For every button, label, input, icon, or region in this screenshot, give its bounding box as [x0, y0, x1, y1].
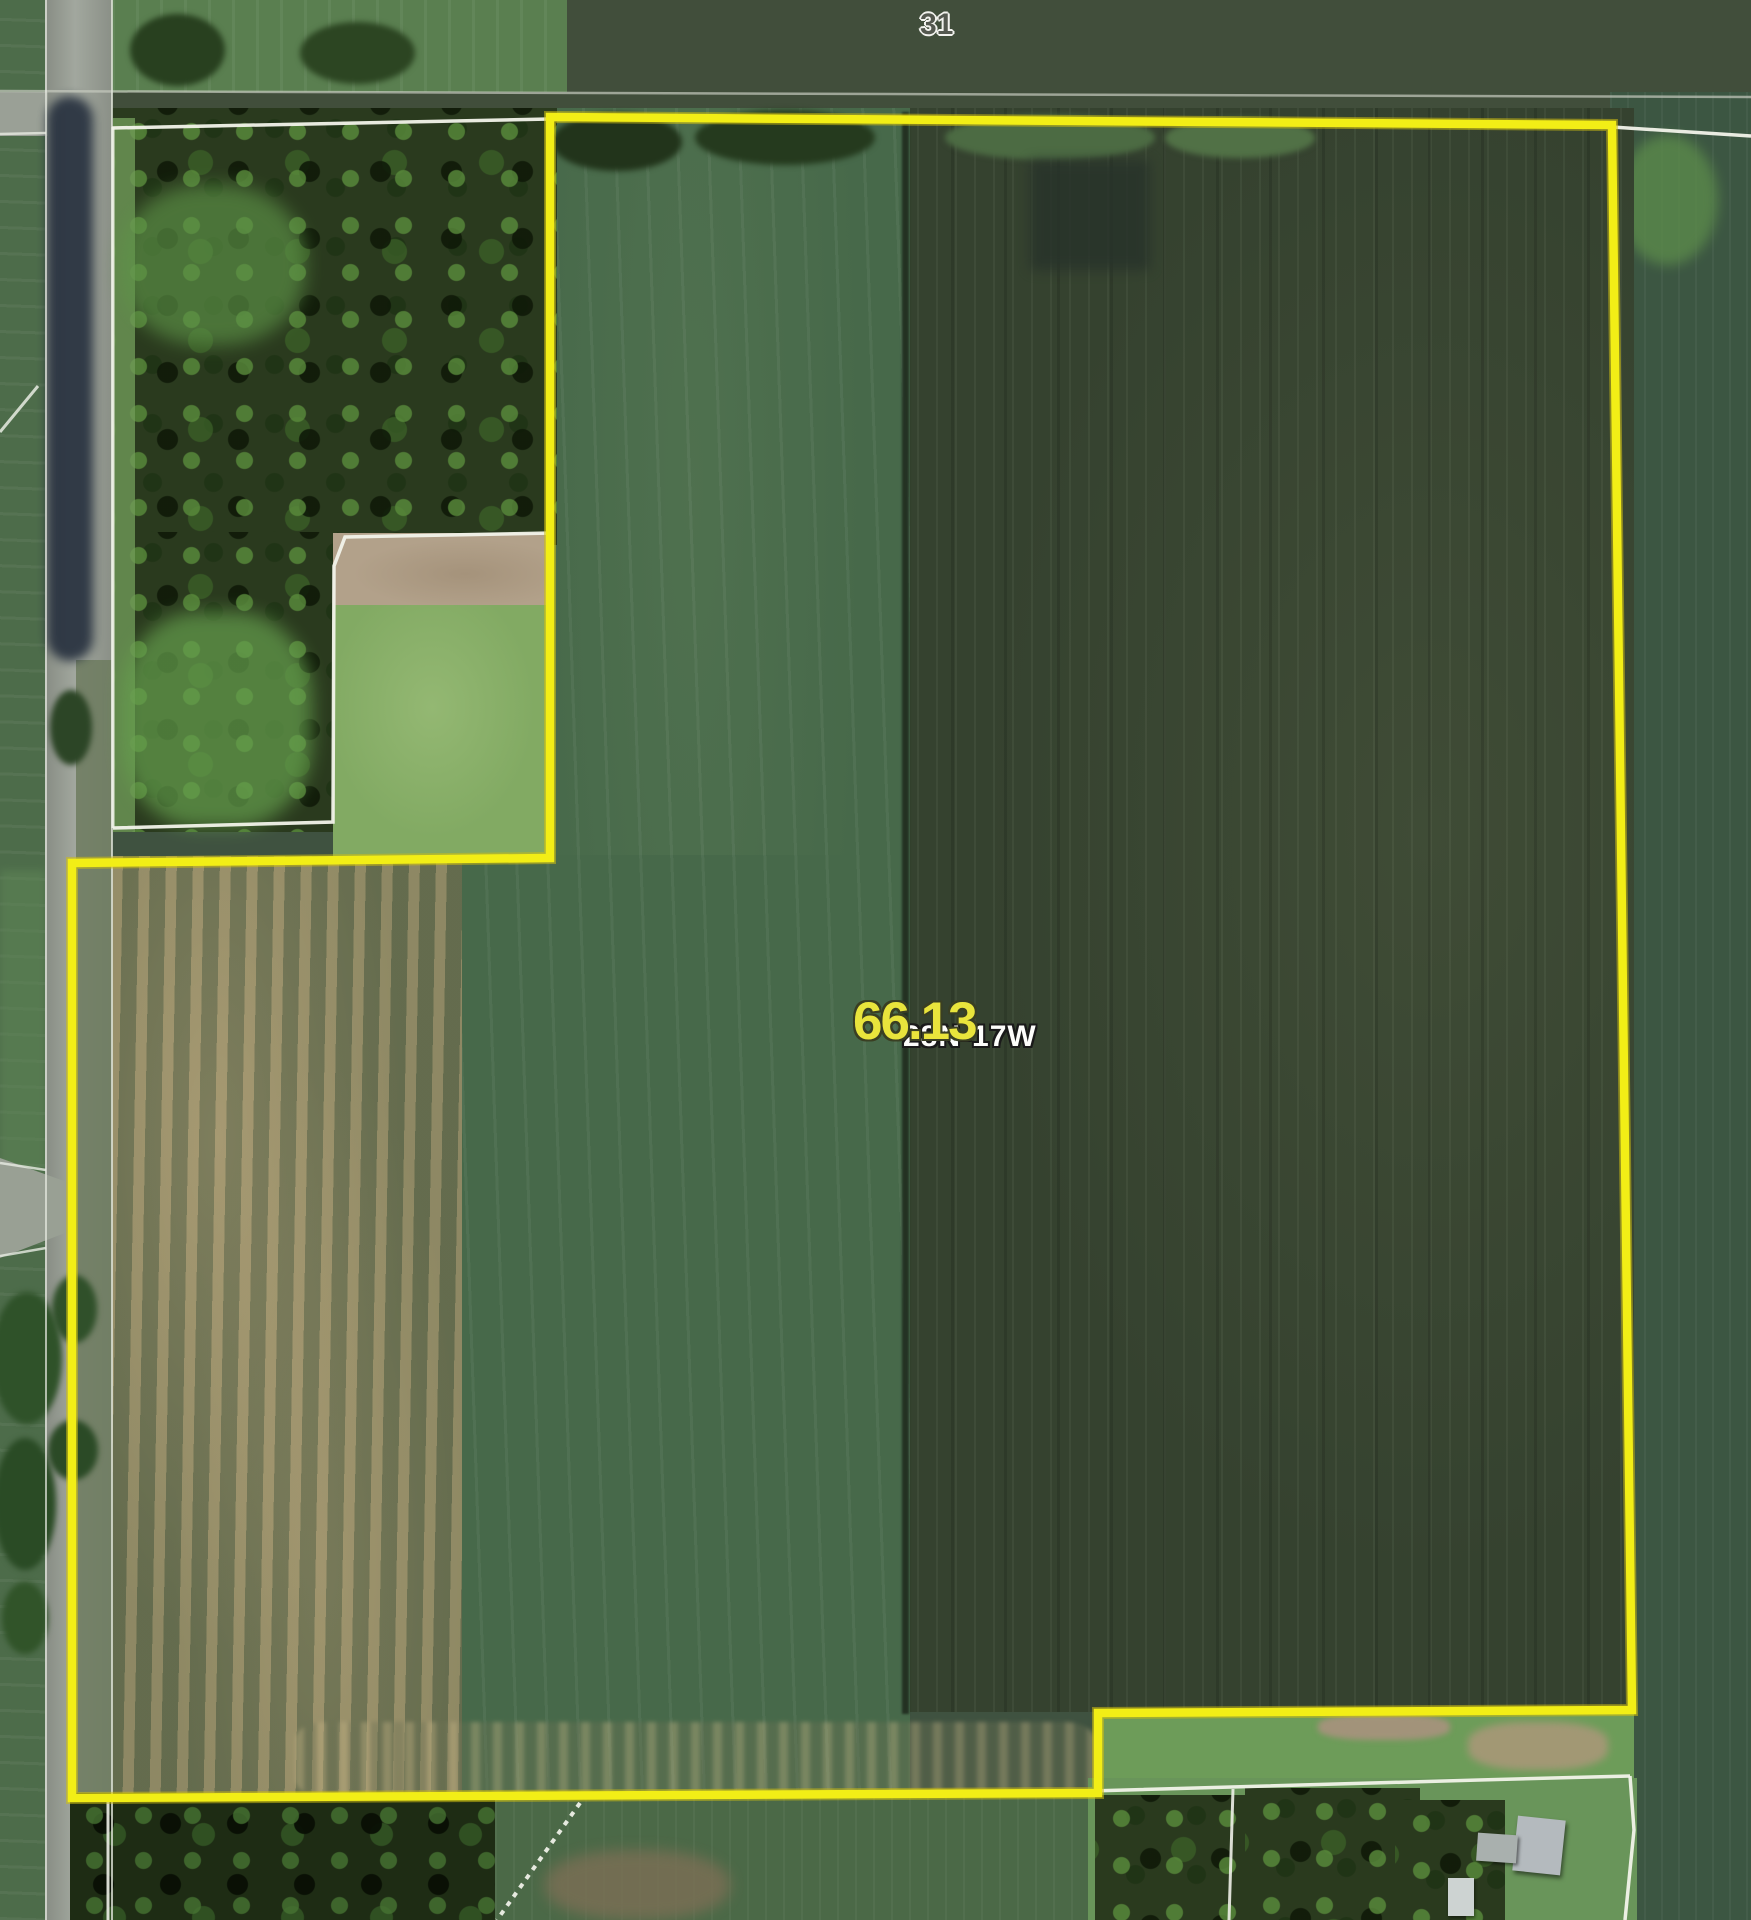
acreage-label: 66.13 [853, 995, 976, 1048]
south-boundary-diagonal [497, 1803, 580, 1920]
side-road-south-edge [0, 1248, 46, 1256]
farmstead-boundary-east [1625, 1776, 1634, 1920]
boundary-lines-overlay [0, 0, 1751, 1920]
neighbor-boundary-north-right [1612, 127, 1751, 136]
farmstead-boundary-inner [1229, 1789, 1233, 1920]
neighbor-boundary-woods-clearing [113, 533, 552, 828]
side-road-north-edge [0, 1163, 46, 1170]
west-driveway-line [0, 386, 38, 432]
farmstead-boundary-north [1090, 1776, 1630, 1791]
parcel-boundary[interactable] [72, 117, 1632, 1798]
section-line-gray [0, 91, 1751, 97]
neighbor-boundary-north-left [112, 119, 550, 128]
aerial-map[interactable]: 28N-17W 66.13 31 [0, 0, 1751, 1920]
parcel-boundary-underglow [72, 117, 1632, 1798]
section-number-label: 31 [920, 10, 953, 40]
road-west-arm-edge [0, 133, 46, 134]
